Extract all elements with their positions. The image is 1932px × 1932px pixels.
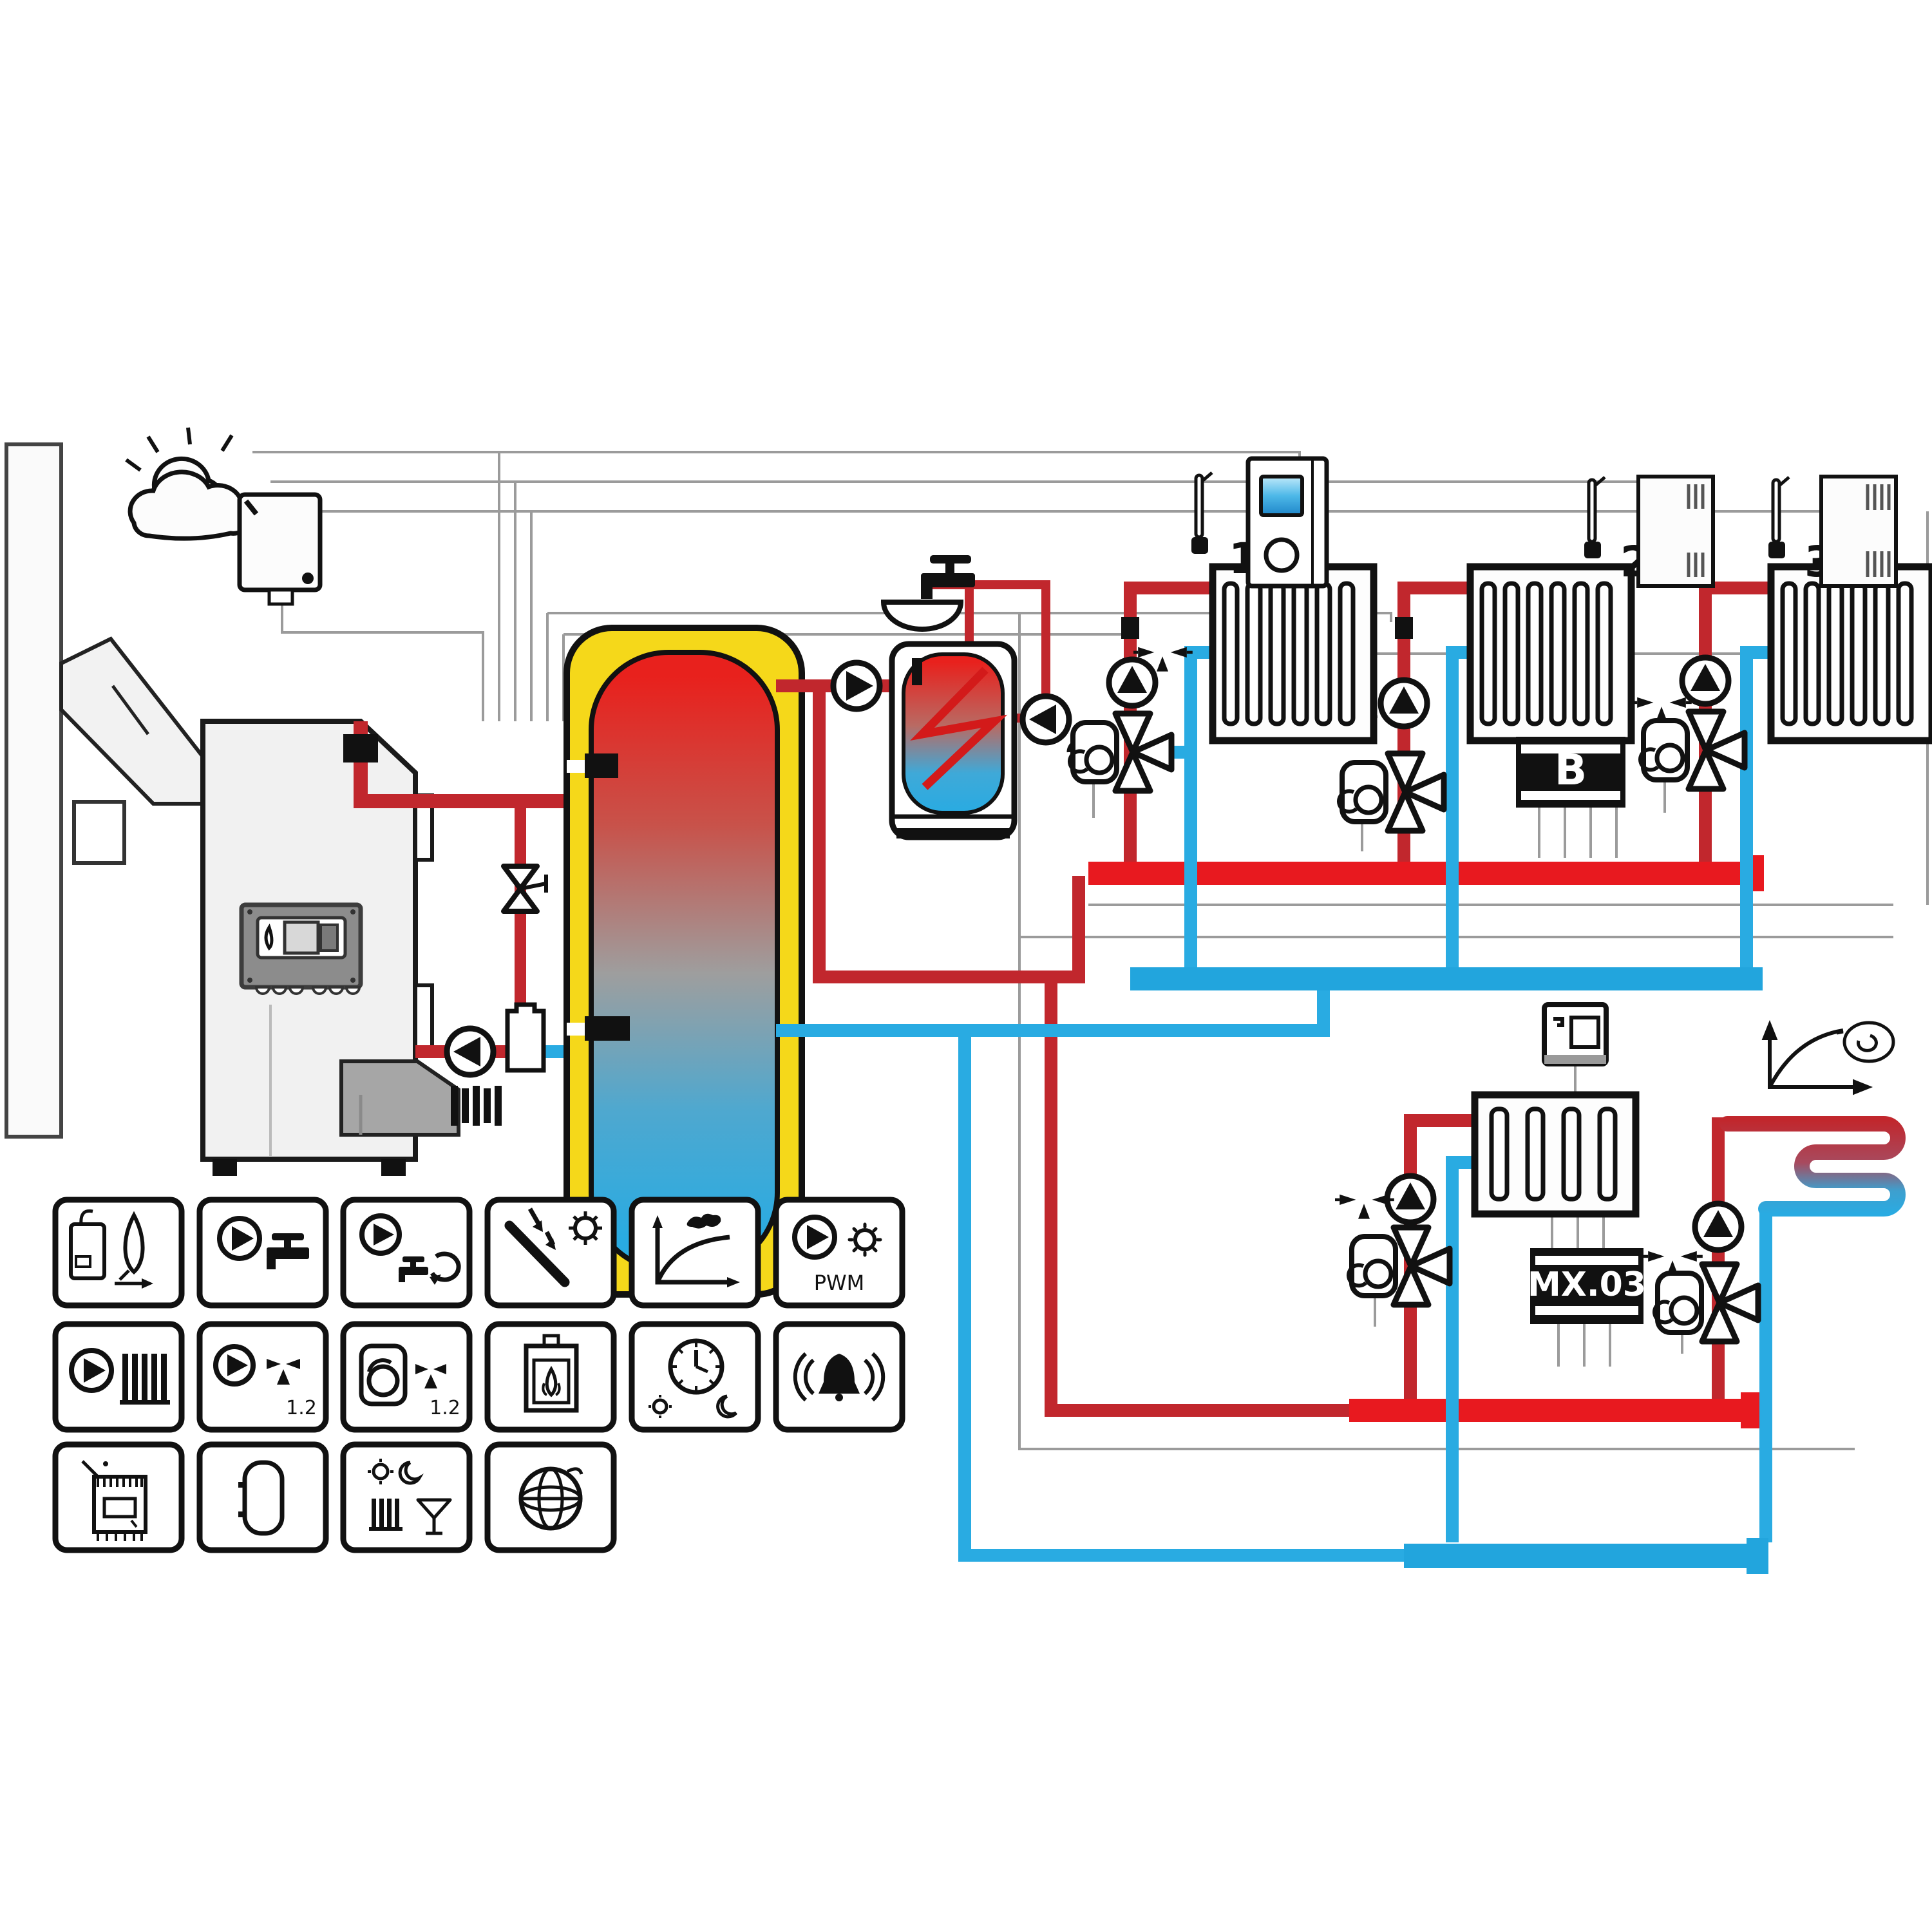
legend-gas-boiler — [55, 1200, 182, 1305]
tee-fitting — [507, 1005, 544, 1070]
legend-electric-heater — [55, 1444, 182, 1550]
return-manifold-bottom — [1404, 1544, 1768, 1568]
hydraulic-scheme-canvas: B MX.03 1 2 — [0, 0, 1932, 1932]
burner — [341, 1061, 459, 1135]
return-manifold-bottom-cap — [1747, 1538, 1768, 1574]
legend-dhw-pump — [200, 1200, 326, 1305]
legend-mixed-pumps: 1.2 — [200, 1324, 326, 1430]
extension-module-b: B — [1519, 739, 1623, 805]
controller-knob — [321, 925, 337, 951]
legend-grid: PWM 1.2 — [55, 1200, 902, 1550]
circuit3-pump — [1682, 658, 1728, 704]
radiator-zone3 — [1771, 567, 1932, 741]
extension-module-label: B — [1555, 745, 1587, 795]
boiler-controller — [241, 905, 361, 994]
legend-heating-curve — [632, 1200, 758, 1305]
circuit3-vent-icon — [1633, 697, 1692, 722]
circuit3-valve-actuator — [1640, 721, 1687, 780]
return-manifold-top — [1130, 967, 1763, 990]
legend-modes — [343, 1444, 469, 1550]
dhw-tank — [892, 644, 1014, 838]
mixer-module-label: MX.03 — [1528, 1265, 1646, 1304]
circuit1-pump — [1109, 659, 1155, 706]
radiator-zone1 — [1213, 567, 1374, 741]
room-thermostat — [1544, 1005, 1606, 1064]
circuit4-vent-icon — [1335, 1195, 1394, 1219]
circuit2-pump — [1381, 680, 1427, 726]
circuit4-mixing-valve — [1394, 1227, 1450, 1305]
circuit1-valve-actuator — [1070, 723, 1117, 782]
circuit5-mixing-valve — [1702, 1264, 1758, 1341]
mixer-module-mx03: MX.03 — [1528, 1251, 1646, 1321]
boiler-pump — [447, 1028, 493, 1075]
legend-pwm-label: PWM — [814, 1271, 865, 1295]
circuit4-valve-actuator — [1349, 1236, 1396, 1296]
radiator-zone2 — [1470, 567, 1631, 741]
boiler-supply-sensor — [343, 734, 378, 762]
floor-heating-coil — [1727, 1124, 1898, 1209]
legend-alarm — [776, 1324, 902, 1430]
circuit1-flow-sensor — [1121, 617, 1139, 639]
legend-mixing-actuators: 1.2 — [343, 1324, 469, 1430]
legend-pumps-count: 1.2 — [286, 1397, 317, 1419]
dhw-charging-pump — [833, 663, 880, 709]
basin-icon — [884, 602, 961, 629]
radiator-zone4 — [1475, 1095, 1636, 1214]
circuit3-mixing-valve — [1689, 712, 1745, 789]
thermometer-icon — [1584, 477, 1605, 558]
boiler — [203, 721, 459, 1176]
heating-curve-icon — [1765, 1023, 1893, 1092]
outdoor-sensor — [126, 428, 320, 604]
thermometer-icon — [1768, 477, 1789, 558]
circuit2-flow-sensor — [1395, 617, 1413, 639]
legend-internet — [488, 1444, 614, 1550]
circuit2-valve-actuator — [1339, 762, 1386, 822]
buffer-top-sensor — [585, 753, 618, 778]
legend-time-program — [632, 1324, 758, 1430]
circuit5-valve-actuator — [1654, 1273, 1701, 1332]
circuit5-pump — [1695, 1204, 1741, 1250]
legend-buffer-tank — [200, 1444, 326, 1550]
legend-actuators-count: 1.2 — [430, 1397, 460, 1419]
sun-cloud-icon — [126, 428, 250, 538]
buffer-tank — [567, 628, 802, 1294]
legend-circulation-pump — [343, 1200, 469, 1305]
legend-solid-fuel — [488, 1324, 614, 1430]
legend-solar — [488, 1200, 614, 1305]
bypass-valve — [504, 866, 546, 911]
controller1-dial — [1266, 540, 1297, 571]
thermometer-icon — [1191, 473, 1212, 554]
buffer-bottom-sensor — [585, 1016, 630, 1041]
supply-manifold-bottom — [1349, 1399, 1763, 1422]
circuit4-pump — [1387, 1176, 1434, 1222]
circuit2-mixing-valve — [1388, 753, 1444, 831]
legend-pwm-pump: PWM — [776, 1200, 902, 1305]
controller1-display — [1261, 477, 1302, 515]
dhw-circulation-pump — [1023, 696, 1069, 743]
chimney — [6, 444, 124, 1137]
legend-heating-pump — [55, 1324, 182, 1430]
controller-display — [285, 922, 318, 953]
heating-scheme-screenshot: B MX.03 1 2 — [0, 0, 1932, 1932]
dhw-sensor — [912, 658, 922, 685]
